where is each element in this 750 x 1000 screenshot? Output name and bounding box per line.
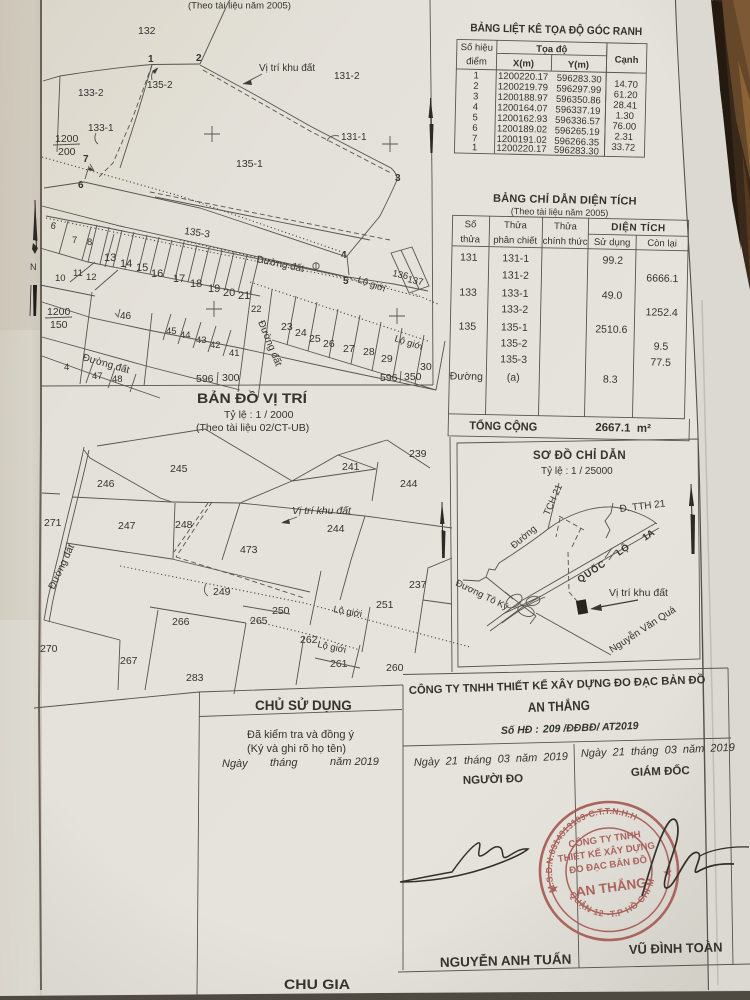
svg-text:1200220.17: 1200220.17 bbox=[496, 143, 546, 155]
svg-text:Vị trí khu đất: Vị trí khu đất bbox=[259, 62, 315, 74]
svg-text:Tỷ lệ : 1 / 2000: Tỷ lệ : 1 / 2000 bbox=[224, 409, 294, 421]
svg-text:VŨ ĐÌNH TOÀN: VŨ ĐÌNH TOÀN bbox=[629, 940, 723, 957]
svg-text:133: 133 bbox=[459, 287, 477, 299]
svg-text:4: 4 bbox=[473, 102, 479, 113]
svg-text:131-1: 131-1 bbox=[341, 132, 367, 143]
svg-text:244: 244 bbox=[400, 478, 418, 490]
svg-text:266: 266 bbox=[172, 616, 190, 628]
svg-text:131-2: 131-2 bbox=[502, 269, 529, 282]
svg-text:260: 260 bbox=[386, 662, 404, 674]
svg-text:Vị trí khu đất: Vị trí khu đất bbox=[292, 505, 352, 517]
svg-text:261: 261 bbox=[330, 658, 348, 670]
svg-text:(Ký và ghi rõ họ tên): (Ký và ghi rõ họ tên) bbox=[247, 743, 346, 755]
svg-text:(Theo tài liệu 02/CT-UB): (Theo tài liệu 02/CT-UB) bbox=[196, 422, 309, 434]
svg-text:6: 6 bbox=[472, 123, 478, 134]
svg-text:10: 10 bbox=[55, 273, 66, 284]
svg-text:năm 2019: năm 2019 bbox=[330, 756, 379, 768]
svg-text:Cạnh: Cạnh bbox=[615, 55, 639, 67]
svg-text:21: 21 bbox=[238, 290, 250, 302]
svg-text:1: 1 bbox=[473, 70, 479, 81]
svg-text:tháng: tháng bbox=[270, 757, 298, 769]
svg-text:6: 6 bbox=[78, 180, 84, 191]
svg-text:265: 265 bbox=[250, 615, 268, 627]
svg-text:271: 271 bbox=[44, 517, 62, 529]
svg-text:1: 1 bbox=[148, 54, 154, 65]
svg-text:30: 30 bbox=[420, 361, 432, 373]
svg-text:133-2: 133-2 bbox=[501, 303, 528, 316]
svg-text:246: 246 bbox=[97, 478, 115, 490]
svg-text:13: 13 bbox=[104, 252, 116, 264]
svg-text:1: 1 bbox=[472, 142, 478, 153]
svg-text:(a): (a) bbox=[507, 372, 520, 384]
svg-text:Số: Số bbox=[465, 219, 478, 230]
svg-text:11: 11 bbox=[73, 268, 83, 279]
svg-text:150: 150 bbox=[50, 319, 68, 331]
svg-text:1200: 1200 bbox=[55, 133, 79, 145]
svg-text:1252.4: 1252.4 bbox=[645, 306, 678, 319]
svg-text:X(m): X(m) bbox=[513, 58, 534, 69]
svg-text:SƠ ĐỒ CHỈ DẪN: SƠ ĐỒ CHỈ DẪN bbox=[533, 449, 626, 462]
svg-text:200: 200 bbox=[58, 146, 76, 158]
svg-text:(Theo tài liệu năm 2005): (Theo tài liệu năm 2005) bbox=[188, 1, 291, 12]
svg-text:5: 5 bbox=[472, 112, 478, 123]
svg-text:20: 20 bbox=[223, 287, 235, 299]
svg-text:N: N bbox=[30, 262, 37, 272]
svg-text:251: 251 bbox=[376, 599, 394, 611]
svg-text:596: 596 bbox=[380, 372, 398, 384]
svg-text:19: 19 bbox=[208, 283, 220, 295]
svg-text:2510.6: 2510.6 bbox=[595, 323, 628, 336]
svg-text:6666.1: 6666.1 bbox=[646, 272, 679, 285]
svg-text:596283.30: 596283.30 bbox=[554, 145, 599, 158]
svg-text:283: 283 bbox=[186, 672, 204, 684]
svg-text:99.2: 99.2 bbox=[602, 254, 623, 266]
svg-text:phân chiết: phân chiết bbox=[493, 235, 537, 247]
svg-text:48: 48 bbox=[112, 374, 123, 385]
svg-text:28: 28 bbox=[363, 346, 375, 358]
svg-text:473: 473 bbox=[240, 544, 258, 556]
svg-text:131-2: 131-2 bbox=[334, 71, 360, 82]
svg-text:18: 18 bbox=[190, 278, 202, 290]
svg-text:NGƯỜI ĐO: NGƯỜI ĐO bbox=[463, 772, 524, 787]
svg-text:2667.1 m²: 2667.1 m² bbox=[595, 422, 651, 435]
svg-text:14: 14 bbox=[120, 258, 132, 270]
svg-text:7: 7 bbox=[72, 235, 77, 246]
svg-text:17: 17 bbox=[173, 273, 185, 285]
svg-text:4: 4 bbox=[64, 362, 69, 373]
svg-text:3: 3 bbox=[473, 91, 479, 102]
svg-text:Tỷ lệ : 1 / 25000: Tỷ lệ : 1 / 25000 bbox=[541, 465, 613, 477]
svg-text:131: 131 bbox=[460, 252, 478, 264]
svg-text:135-3: 135-3 bbox=[500, 353, 527, 366]
svg-text:135: 135 bbox=[458, 320, 476, 332]
svg-text:135-1: 135-1 bbox=[236, 158, 263, 170]
svg-text:điểm: điểm bbox=[466, 56, 487, 67]
svg-text:244: 244 bbox=[327, 523, 345, 535]
svg-text:245: 245 bbox=[170, 463, 188, 475]
svg-text:12: 12 bbox=[86, 272, 97, 283]
svg-text:Thửa: Thửa bbox=[504, 220, 528, 231]
svg-text:23: 23 bbox=[281, 321, 293, 333]
svg-text:AN THẮNG: AN THẮNG bbox=[528, 698, 591, 715]
svg-text:248: 248 bbox=[175, 519, 193, 531]
svg-text:DIỆN TÍCH: DIỆN TÍCH bbox=[611, 220, 666, 234]
svg-text:267: 267 bbox=[120, 655, 138, 667]
svg-text:Đã kiểm tra và đồng ý: Đã kiểm tra và đồng ý bbox=[247, 729, 354, 741]
svg-text:131-1: 131-1 bbox=[502, 252, 529, 265]
svg-text:Số hiệu: Số hiệu bbox=[461, 42, 493, 54]
svg-text:133-1: 133-1 bbox=[88, 123, 114, 134]
svg-text:Đường: Đường bbox=[450, 370, 484, 383]
svg-text:25: 25 bbox=[309, 333, 321, 345]
svg-text:133-2: 133-2 bbox=[78, 88, 104, 99]
svg-text:16: 16 bbox=[151, 268, 163, 280]
svg-text:Y(m): Y(m) bbox=[568, 59, 589, 70]
svg-text:Số HĐ :: Số HĐ : bbox=[501, 724, 539, 737]
svg-text:247: 247 bbox=[118, 520, 136, 532]
svg-text:237: 237 bbox=[409, 579, 427, 591]
svg-text:29: 29 bbox=[381, 353, 393, 365]
svg-text:thửa: thửa bbox=[460, 234, 481, 245]
svg-text:TỔNG CỘNG: TỔNG CỘNG bbox=[469, 419, 537, 433]
svg-text:24: 24 bbox=[295, 327, 307, 339]
svg-text:CHỦ SỬ DỤNG: CHỦ SỬ DỤNG bbox=[255, 698, 352, 713]
svg-text:350: 350 bbox=[404, 371, 422, 383]
svg-text:CHU GIA: CHU GIA bbox=[284, 976, 350, 992]
svg-text:(Theo tài liệu năm 2005): (Theo tài liệu năm 2005) bbox=[511, 206, 609, 218]
svg-text:27: 27 bbox=[343, 343, 355, 355]
svg-text:133-1: 133-1 bbox=[501, 287, 528, 300]
svg-text:596: 596 bbox=[196, 373, 214, 385]
svg-text:Vị trí khu đất: Vị trí khu đất bbox=[609, 587, 668, 599]
svg-text:9.5: 9.5 bbox=[654, 341, 669, 353]
svg-text:249: 249 bbox=[213, 586, 231, 598]
svg-text:Thửa: Thửa bbox=[554, 221, 578, 232]
svg-text:132: 132 bbox=[138, 25, 156, 37]
svg-text:Sử dụng: Sử dụng bbox=[594, 237, 631, 249]
svg-text:270: 270 bbox=[40, 643, 58, 655]
svg-text:300: 300 bbox=[222, 372, 240, 384]
svg-text:241: 241 bbox=[342, 461, 360, 473]
svg-text:Tọa độ: Tọa độ bbox=[536, 44, 568, 56]
svg-text:22: 22 bbox=[251, 304, 262, 315]
svg-text:46: 46 bbox=[120, 311, 132, 322]
svg-text:135-1: 135-1 bbox=[501, 321, 528, 334]
svg-text:Ngày: Ngày bbox=[222, 758, 249, 770]
svg-text:77.5: 77.5 bbox=[650, 357, 671, 369]
svg-text:3: 3 bbox=[395, 173, 401, 184]
svg-text:49.0: 49.0 bbox=[602, 289, 623, 301]
svg-text:33.72: 33.72 bbox=[611, 142, 635, 154]
svg-text:239: 239 bbox=[409, 448, 427, 460]
svg-text:135-2: 135-2 bbox=[147, 80, 173, 91]
svg-text:26: 26 bbox=[323, 338, 335, 350]
svg-text:47: 47 bbox=[92, 371, 103, 382]
svg-text:7: 7 bbox=[83, 154, 89, 165]
svg-text:2: 2 bbox=[473, 81, 479, 92]
svg-text:chính thức: chính thức bbox=[543, 236, 588, 248]
svg-text:135-2: 135-2 bbox=[500, 337, 527, 350]
svg-text:41: 41 bbox=[229, 348, 240, 359]
svg-text:★: ★ bbox=[549, 883, 559, 895]
svg-text:15: 15 bbox=[136, 262, 148, 274]
svg-text:8: 8 bbox=[87, 237, 92, 248]
svg-text:Còn lại: Còn lại bbox=[647, 238, 677, 250]
svg-text:8.3: 8.3 bbox=[603, 374, 618, 386]
